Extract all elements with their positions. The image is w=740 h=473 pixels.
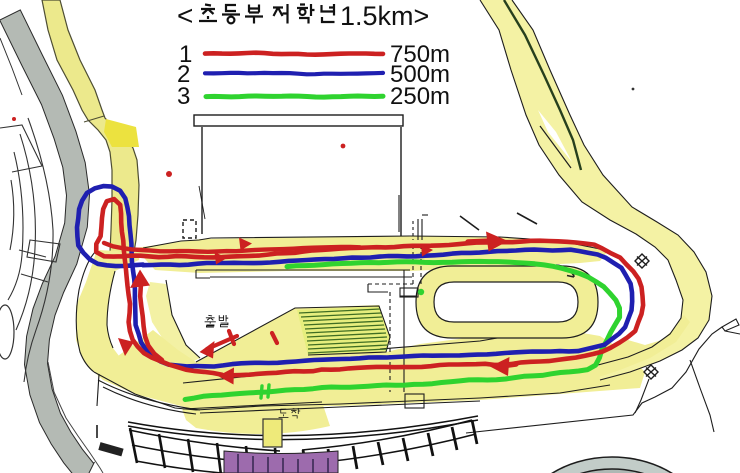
svg-text:<: <: [177, 0, 193, 31]
svg-text:3: 3: [177, 83, 190, 110]
svg-text:1.5km>: 1.5km>: [340, 1, 429, 31]
svg-text:250m: 250m: [390, 83, 450, 110]
